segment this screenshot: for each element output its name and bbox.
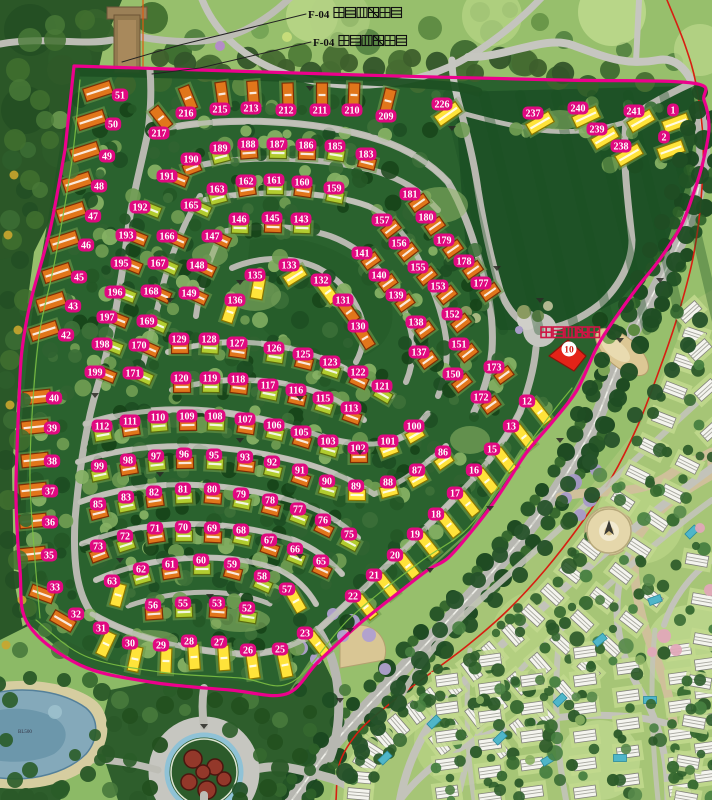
svg-text:111: 111 xyxy=(123,417,137,428)
svg-text:183: 183 xyxy=(359,150,374,161)
svg-text:122: 122 xyxy=(351,368,366,379)
svg-text:88: 88 xyxy=(383,478,393,489)
svg-text:49: 49 xyxy=(102,152,112,163)
svg-text:10: 10 xyxy=(564,346,574,356)
svg-text:171: 171 xyxy=(126,369,141,380)
svg-text:196: 196 xyxy=(108,288,123,299)
svg-text:68: 68 xyxy=(236,526,246,537)
svg-text:19: 19 xyxy=(410,530,420,541)
svg-text:123: 123 xyxy=(323,358,338,369)
svg-text:106: 106 xyxy=(267,421,282,432)
svg-text:62: 62 xyxy=(136,565,146,576)
svg-text:172: 172 xyxy=(474,393,489,404)
svg-text:130: 130 xyxy=(351,322,366,333)
svg-text:F-04: F-04 xyxy=(308,9,330,21)
svg-text:70: 70 xyxy=(178,523,188,534)
svg-text:77: 77 xyxy=(293,505,303,516)
svg-text:67: 67 xyxy=(264,536,274,547)
svg-text:157: 157 xyxy=(375,216,390,227)
svg-text:55: 55 xyxy=(178,599,188,610)
svg-text:46: 46 xyxy=(81,241,91,252)
svg-text:1: 1 xyxy=(671,106,676,117)
svg-text:150: 150 xyxy=(446,370,461,381)
svg-text:173: 173 xyxy=(487,363,502,374)
svg-text:102: 102 xyxy=(351,444,366,455)
svg-text:15: 15 xyxy=(487,445,497,456)
svg-text:129: 129 xyxy=(172,335,187,346)
svg-text:80: 80 xyxy=(207,485,217,496)
svg-text:140: 140 xyxy=(372,271,387,282)
svg-text:85: 85 xyxy=(93,500,103,511)
svg-text:159: 159 xyxy=(327,184,342,195)
svg-text:93: 93 xyxy=(240,453,250,464)
svg-text:161: 161 xyxy=(267,176,282,187)
svg-text:165: 165 xyxy=(184,201,199,212)
svg-text:215: 215 xyxy=(213,105,228,116)
svg-text:100: 100 xyxy=(407,422,422,433)
svg-text:187: 187 xyxy=(270,140,285,151)
svg-text:58: 58 xyxy=(257,572,267,583)
svg-text:199: 199 xyxy=(88,368,103,379)
svg-text:163: 163 xyxy=(210,185,225,196)
svg-text:61: 61 xyxy=(165,560,175,571)
svg-text:63: 63 xyxy=(107,577,117,588)
svg-text:198: 198 xyxy=(95,340,110,351)
svg-text:50: 50 xyxy=(108,120,118,131)
svg-text:226: 226 xyxy=(435,100,450,111)
svg-text:32: 32 xyxy=(71,610,81,621)
svg-text:169: 169 xyxy=(140,317,155,328)
svg-text:16: 16 xyxy=(469,466,479,477)
svg-text:120: 120 xyxy=(174,374,189,385)
svg-text:22: 22 xyxy=(348,592,358,603)
svg-text:152: 152 xyxy=(445,310,460,321)
svg-text:190: 190 xyxy=(184,155,199,166)
svg-text:180: 180 xyxy=(419,213,434,224)
svg-text:116: 116 xyxy=(289,386,303,397)
svg-text:143: 143 xyxy=(294,215,309,226)
svg-text:195: 195 xyxy=(114,259,129,270)
svg-text:160: 160 xyxy=(295,178,310,189)
svg-text:146: 146 xyxy=(232,215,247,226)
svg-text:151: 151 xyxy=(452,340,467,351)
svg-text:177: 177 xyxy=(474,279,489,290)
svg-text:37: 37 xyxy=(45,487,55,498)
svg-text:155: 155 xyxy=(411,263,426,274)
svg-text:147: 147 xyxy=(205,232,220,243)
svg-text:133: 133 xyxy=(282,261,297,272)
svg-text:117: 117 xyxy=(261,381,275,392)
svg-text:86: 86 xyxy=(438,448,448,459)
svg-text:33: 33 xyxy=(50,583,60,594)
svg-text:31: 31 xyxy=(96,624,106,635)
svg-text:162: 162 xyxy=(239,177,254,188)
svg-text:69: 69 xyxy=(207,524,217,535)
svg-text:105: 105 xyxy=(294,428,309,439)
svg-text:87: 87 xyxy=(412,466,422,477)
svg-text:211: 211 xyxy=(313,106,327,117)
svg-text:51: 51 xyxy=(115,91,125,102)
svg-text:107: 107 xyxy=(238,415,253,426)
svg-text:57: 57 xyxy=(282,585,292,596)
svg-text:98: 98 xyxy=(123,456,133,467)
svg-text:18: 18 xyxy=(431,510,441,521)
svg-text:110: 110 xyxy=(151,413,165,424)
svg-text:131: 131 xyxy=(336,296,351,307)
svg-text:239: 239 xyxy=(590,125,605,136)
svg-text:213: 213 xyxy=(244,104,259,115)
svg-text:240: 240 xyxy=(571,104,586,115)
svg-text:45: 45 xyxy=(74,273,84,284)
svg-text:136: 136 xyxy=(228,296,243,307)
svg-text:36: 36 xyxy=(45,518,55,529)
svg-text:97: 97 xyxy=(151,452,161,463)
svg-text:40: 40 xyxy=(49,394,59,405)
svg-text:96: 96 xyxy=(179,450,189,461)
svg-text:241: 241 xyxy=(627,107,642,118)
svg-text:35: 35 xyxy=(44,551,54,562)
svg-text:238: 238 xyxy=(614,142,629,153)
svg-text:43: 43 xyxy=(68,302,78,313)
svg-text:47: 47 xyxy=(88,212,98,223)
svg-text:118: 118 xyxy=(231,375,245,386)
svg-text:65: 65 xyxy=(316,557,326,568)
svg-text:42: 42 xyxy=(61,331,71,342)
svg-text:128: 128 xyxy=(202,335,217,346)
svg-text:82: 82 xyxy=(149,488,159,499)
svg-text:191: 191 xyxy=(160,172,175,183)
svg-text:137: 137 xyxy=(412,348,427,359)
svg-text:197: 197 xyxy=(100,313,115,324)
svg-text:60: 60 xyxy=(196,556,206,567)
svg-text:81: 81 xyxy=(178,485,188,496)
svg-text:83: 83 xyxy=(121,493,131,504)
svg-text:141: 141 xyxy=(355,249,370,260)
svg-text:73: 73 xyxy=(93,542,103,553)
svg-text:126: 126 xyxy=(267,344,282,355)
svg-text:53: 53 xyxy=(212,599,222,610)
svg-text:92: 92 xyxy=(267,458,277,469)
svg-text:166: 166 xyxy=(160,232,175,243)
svg-text:113: 113 xyxy=(344,404,358,415)
svg-text:56: 56 xyxy=(148,601,158,612)
svg-text:52: 52 xyxy=(242,604,252,615)
svg-text:29: 29 xyxy=(156,641,166,652)
svg-text:89: 89 xyxy=(351,482,361,493)
svg-text:209: 209 xyxy=(379,112,394,123)
svg-text:12: 12 xyxy=(522,397,532,408)
svg-text:71: 71 xyxy=(150,524,160,535)
svg-text:148: 148 xyxy=(190,261,205,272)
svg-text:101: 101 xyxy=(381,437,396,448)
svg-text:109: 109 xyxy=(180,412,195,423)
svg-text:193: 193 xyxy=(119,231,134,242)
svg-text:132: 132 xyxy=(314,276,329,287)
svg-text:112: 112 xyxy=(95,422,109,433)
svg-text:167: 167 xyxy=(151,259,166,270)
svg-text:138: 138 xyxy=(409,318,424,329)
svg-text:145: 145 xyxy=(265,214,280,225)
svg-text:95: 95 xyxy=(209,451,219,462)
svg-text:39: 39 xyxy=(47,424,57,435)
svg-text:178: 178 xyxy=(457,257,472,268)
svg-text:23: 23 xyxy=(300,629,310,640)
svg-text:127: 127 xyxy=(230,339,245,350)
svg-text:121: 121 xyxy=(375,382,390,393)
svg-text:78: 78 xyxy=(265,496,275,507)
svg-text:28: 28 xyxy=(184,637,194,648)
svg-text:BL500: BL500 xyxy=(18,730,32,735)
svg-text:185: 185 xyxy=(328,142,343,153)
svg-text:210: 210 xyxy=(345,106,360,117)
svg-text:125: 125 xyxy=(296,350,311,361)
svg-text:115: 115 xyxy=(316,394,330,405)
svg-text:38: 38 xyxy=(47,457,57,468)
svg-text:91: 91 xyxy=(295,466,305,477)
svg-text:186: 186 xyxy=(299,141,314,152)
svg-text:26: 26 xyxy=(243,646,253,657)
svg-text:30: 30 xyxy=(125,639,135,650)
svg-text:135: 135 xyxy=(248,271,263,282)
svg-text:119: 119 xyxy=(203,374,217,385)
svg-text:48: 48 xyxy=(94,182,104,193)
svg-text:90: 90 xyxy=(322,477,332,488)
svg-text:156: 156 xyxy=(392,239,407,250)
svg-text:153: 153 xyxy=(431,282,446,293)
svg-text:13: 13 xyxy=(506,422,516,433)
svg-text:2: 2 xyxy=(662,133,667,144)
svg-text:108: 108 xyxy=(208,412,223,423)
svg-text:99: 99 xyxy=(94,462,104,473)
svg-text:76: 76 xyxy=(318,516,328,527)
svg-text:189: 189 xyxy=(213,144,228,155)
svg-text:170: 170 xyxy=(132,341,147,352)
svg-text:75: 75 xyxy=(344,530,354,541)
svg-text:192: 192 xyxy=(133,203,148,214)
svg-text:20: 20 xyxy=(390,551,400,562)
svg-text:72: 72 xyxy=(120,532,130,543)
svg-text:79: 79 xyxy=(236,490,246,501)
svg-text:168: 168 xyxy=(144,287,159,298)
svg-text:66: 66 xyxy=(290,545,300,556)
svg-text:179: 179 xyxy=(437,236,452,247)
svg-text:212: 212 xyxy=(279,106,294,117)
svg-text:25: 25 xyxy=(275,645,285,656)
svg-text:F-04: F-04 xyxy=(313,37,335,49)
svg-text:139: 139 xyxy=(389,291,404,302)
svg-text:237: 237 xyxy=(526,109,541,120)
svg-text:217: 217 xyxy=(152,129,167,140)
svg-text:59: 59 xyxy=(227,560,237,571)
svg-text:103: 103 xyxy=(321,437,336,448)
svg-text:27: 27 xyxy=(214,638,224,649)
svg-text:216: 216 xyxy=(179,109,194,120)
svg-text:181: 181 xyxy=(403,190,418,201)
svg-text:188: 188 xyxy=(241,140,256,151)
svg-text:17: 17 xyxy=(450,489,460,500)
svg-text:149: 149 xyxy=(182,289,197,300)
svg-text:21: 21 xyxy=(369,571,379,582)
